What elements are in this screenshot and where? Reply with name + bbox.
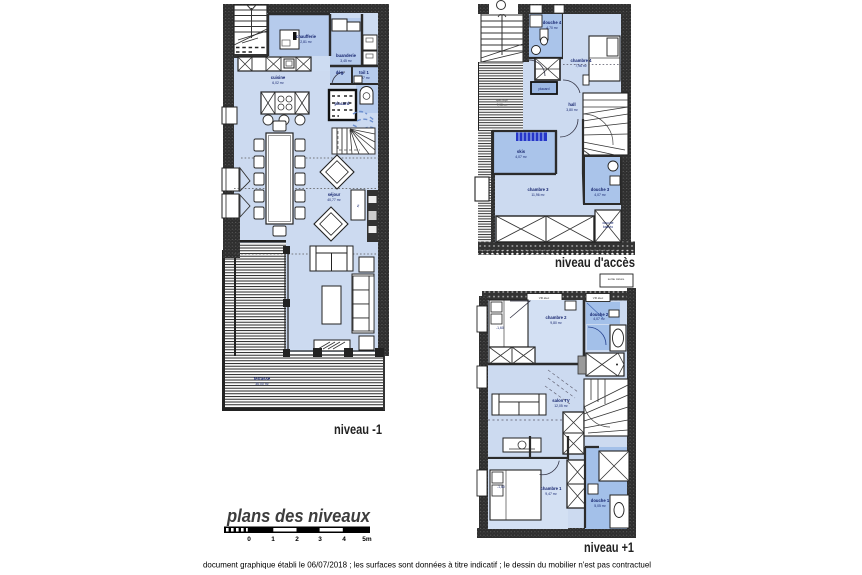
svg-text:dég.: dég. — [336, 70, 345, 75]
svg-text:douche 1: douche 1 — [591, 498, 610, 503]
svg-text:7,96 m²: 7,96 m² — [575, 64, 587, 68]
svg-text:36,00 m²: 36,00 m² — [255, 382, 269, 386]
svg-text:balnéo: balnéo — [603, 225, 613, 229]
svg-text:3: 3 — [318, 536, 322, 543]
svg-text:niveau d'accès: niveau d'accès — [555, 254, 635, 270]
svg-text:5m: 5m — [362, 536, 372, 543]
svg-text:5,05 m²: 5,05 m² — [594, 504, 606, 508]
svg-text:chambre 2: chambre 2 — [546, 315, 568, 320]
svg-text:3,80 m²: 3,80 m² — [566, 108, 578, 112]
svg-text:6,02 m²: 6,02 m² — [272, 81, 284, 85]
svg-text:4,70 m²: 4,70 m² — [546, 26, 558, 30]
svg-text:-1,60: -1,60 — [496, 326, 504, 330]
svg-text:hall: hall — [568, 102, 575, 107]
svg-text:placard: placard — [538, 87, 549, 91]
svg-text:document graphique établi le 0: document graphique établi le 06/07/2018 … — [203, 560, 651, 570]
svg-text:2: 2 — [295, 536, 299, 543]
svg-text:skis: skis — [517, 149, 526, 154]
svg-text:toil 1: toil 1 — [359, 70, 369, 75]
svg-text:chambre 1: chambre 1 — [541, 486, 563, 491]
svg-text:12,05 m²: 12,05 m² — [554, 404, 568, 408]
svg-text:cuisine: cuisine — [271, 75, 286, 80]
svg-text:4,07 m²: 4,07 m² — [515, 155, 527, 159]
svg-text:VR élec: VR élec — [593, 296, 604, 300]
svg-text:chambre 3: chambre 3 — [528, 187, 550, 192]
svg-text:chaufferie: chaufferie — [296, 34, 317, 39]
svg-text:9,80 m²: 9,80 m² — [550, 321, 562, 325]
svg-text:3,45 m²: 3,45 m² — [340, 59, 352, 63]
svg-text:1: 1 — [271, 536, 275, 543]
svg-text:7,98 m²: 7,98 m² — [497, 103, 508, 107]
svg-text:niveau -1: niveau -1 — [334, 421, 382, 437]
svg-text:douche 3: douche 3 — [591, 187, 610, 192]
svg-text:11,96 m²: 11,96 m² — [531, 193, 545, 197]
svg-text:niveau +1: niveau +1 — [584, 539, 634, 555]
svg-text:terrasse: terrasse — [254, 376, 271, 381]
svg-text:0: 0 — [247, 536, 251, 543]
svg-text:chambre 4: chambre 4 — [571, 58, 593, 63]
svg-text:garage: garage — [496, 97, 509, 102]
svg-text:sortie toiture: sortie toiture — [608, 277, 625, 281]
svg-text:9,47 m²: 9,47 m² — [545, 492, 557, 496]
svg-text:buanderie: buanderie — [336, 53, 357, 58]
svg-text:douche 4: douche 4 — [543, 20, 562, 25]
svg-text:4,07 m²: 4,07 m² — [593, 317, 605, 321]
svg-text:4: 4 — [342, 536, 346, 543]
svg-text:plans des niveaux: plans des niveaux — [226, 505, 371, 526]
svg-text:-1,60: -1,60 — [497, 485, 505, 489]
svg-text:2,81 m²: 2,81 m² — [300, 40, 312, 44]
svg-text:4,07 m²: 4,07 m² — [594, 193, 606, 197]
svg-text:40,77 m²: 40,77 m² — [327, 198, 341, 202]
svg-text:tv: tv — [356, 205, 360, 208]
svg-text:placard: placard — [335, 101, 350, 106]
svg-text:VR élec: VR élec — [539, 296, 550, 300]
svg-text:séjour: séjour — [328, 192, 341, 197]
